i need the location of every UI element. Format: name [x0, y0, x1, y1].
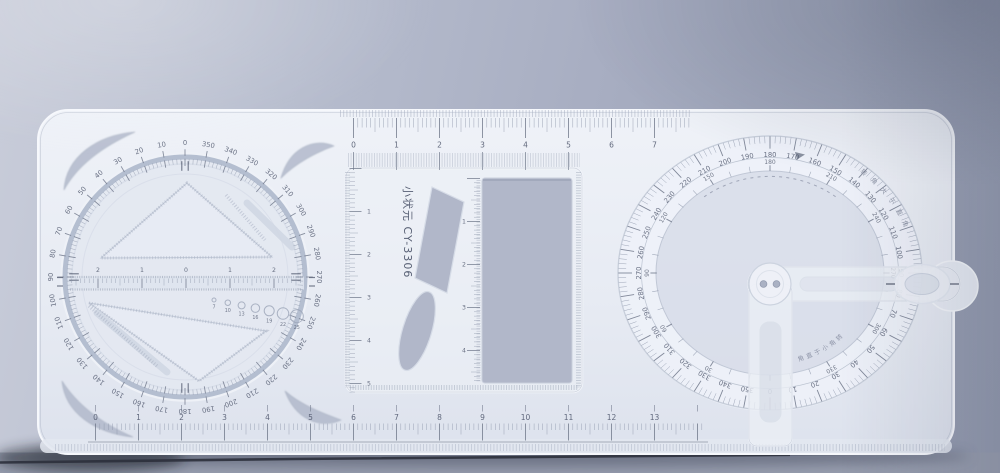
arm-slot-vertical [760, 322, 781, 422]
ruler-number: 0 [93, 413, 98, 422]
ruler-number: 2 [179, 413, 184, 422]
pivot [749, 263, 791, 305]
ruler-number: 2 [437, 141, 442, 150]
drafting-ruler-photo: 0102030405060708090100110120130140150160… [0, 0, 1000, 473]
ruler-number: 2 [272, 267, 276, 274]
scale-label: 180 [764, 151, 777, 159]
photo-scene: 0102030405060708090100110120130140150160… [0, 0, 1000, 473]
ruler-number: 2 [96, 267, 100, 274]
ruler-number: 19 [266, 318, 272, 324]
ruler-number: 4 [462, 348, 466, 355]
ruler-number: 1 [462, 219, 466, 226]
ruler-number: 4 [265, 413, 270, 422]
pivot-hole [760, 281, 767, 288]
ruler-number: 2 [462, 262, 466, 269]
ruler-number: 11 [564, 413, 574, 422]
ruler-number: 5 [367, 381, 371, 388]
ruler-number: 5 [566, 141, 571, 150]
slider-knob-slot [905, 274, 939, 295]
ruler-number: 13 [650, 413, 660, 422]
scale-label: 80 [48, 249, 57, 259]
ruler-number: 25 [294, 325, 300, 331]
pivot-hole [773, 281, 780, 288]
arm-slot-horizontal [800, 277, 898, 291]
ruler-number: 6 [609, 141, 614, 150]
rectangle-cutout [482, 178, 572, 383]
ruler-number: 22 [280, 322, 286, 328]
scale-label: 10 [157, 140, 167, 149]
ruler-number: 10 [521, 413, 531, 422]
ruler-number: 6 [351, 413, 356, 422]
ruler-number: 3 [222, 413, 227, 422]
ruler-number: 1 [136, 413, 141, 422]
ruler-number: 0 [351, 141, 356, 150]
ruler-number: 1 [228, 267, 232, 274]
ruler-number: 8 [437, 413, 442, 422]
ruler-number: 16 [252, 315, 258, 321]
ruler-number: 3 [367, 295, 371, 302]
ruler-number: 3 [480, 141, 485, 150]
scale-label: 270 [635, 267, 643, 280]
scale-label: 0 [183, 139, 187, 147]
template-frame: 小状元 CY-3306 123451234 [346, 160, 582, 392]
ruler-number: 2 [367, 252, 371, 259]
ruler-number: 7 [394, 413, 399, 422]
scale-label: 90 [644, 269, 651, 277]
scale-label: 180 [764, 159, 776, 166]
ruler-number: 10 [225, 308, 231, 314]
ruler-number: 13 [239, 311, 245, 317]
ruler-number: 1 [367, 209, 371, 216]
ruler-number: 3 [462, 305, 466, 312]
ruler-number: 7 [212, 305, 215, 311]
ruler-number: 4 [367, 338, 371, 345]
brand-text: 小状元 CY-3306 [401, 186, 415, 278]
ruler-number: 9 [480, 413, 485, 422]
ruler-number: 5 [308, 413, 313, 422]
ruler-number: 4 [523, 141, 528, 150]
ruler-number: 1 [140, 267, 144, 274]
scale-label: 90 [47, 273, 55, 282]
ruler-number: 12 [607, 413, 617, 422]
ruler-number: 7 [652, 141, 657, 150]
ruler-number: 0 [184, 267, 188, 274]
scale-label: 270 [315, 271, 323, 284]
ruler-number: 1 [394, 141, 399, 150]
